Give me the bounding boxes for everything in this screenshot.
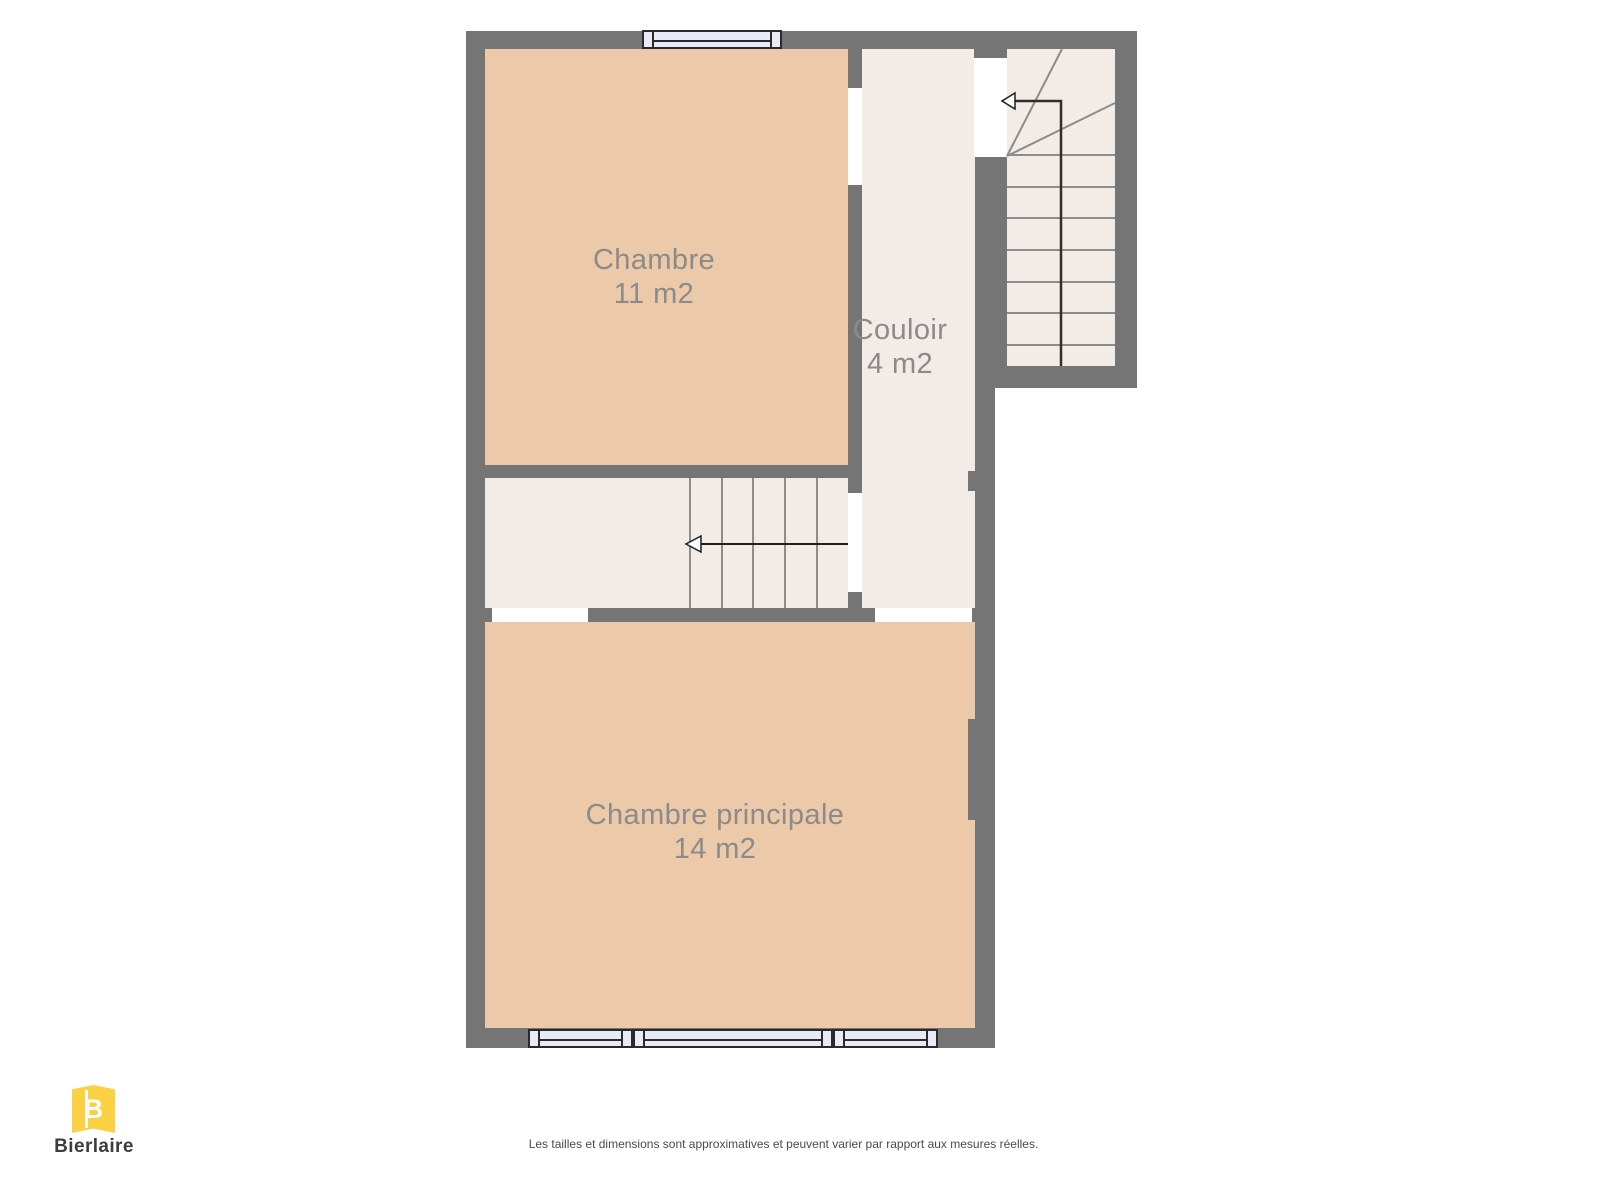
window-bottom-left <box>528 1029 633 1048</box>
doorway-couloir-principale <box>875 608 972 622</box>
doorway-chambre-couloir <box>848 88 862 185</box>
middle-stairs-direction-arrow-icon <box>686 536 701 552</box>
window-rail <box>540 1039 621 1041</box>
room-name: Couloir <box>845 313 955 347</box>
room-name: Chambre principale <box>485 798 945 832</box>
floor-plan-page: Chambre 11 m2 Couloir 4 m2 Chambre princ… <box>0 0 1600 1200</box>
room-area: 11 m2 <box>473 277 835 311</box>
window-rail <box>645 1039 821 1041</box>
window-cap <box>926 1031 928 1046</box>
room-name: Chambre <box>473 243 835 277</box>
wall-left <box>466 31 485 1048</box>
wall-stairwell-bottom <box>975 366 1137 388</box>
wall-stairwell-right <box>1115 31 1137 388</box>
window-bottom-center <box>633 1029 833 1048</box>
middle-stairs <box>485 478 848 608</box>
room-label-chambre: Chambre 11 m2 <box>473 243 835 311</box>
room-label-couloir: Couloir 4 m2 <box>845 313 955 381</box>
window-cap <box>821 1031 823 1046</box>
wall-top <box>466 31 1137 49</box>
stairwell-stairs <box>1007 49 1115 366</box>
logo-monogram-stem <box>85 1090 88 1128</box>
window-top <box>642 30 782 49</box>
wall-chambre-landing <box>466 465 862 478</box>
wall-right <box>975 388 995 1048</box>
room-label-chambre-principale: Chambre principale 14 m2 <box>485 798 945 866</box>
window-bottom-right <box>833 1029 938 1048</box>
window-cap <box>621 1031 623 1046</box>
window-cap <box>770 32 772 47</box>
room-area: 4 m2 <box>845 347 955 381</box>
doorway-landing-couloir <box>848 493 862 592</box>
doorway-couloir-stairwell <box>974 58 1007 157</box>
wall-top-notch <box>974 49 1007 58</box>
wall-landing-couloir-upper <box>848 478 862 493</box>
window-rail <box>845 1039 926 1041</box>
logo-monogram: B <box>72 1093 115 1125</box>
wall-chambre-couloir-upper <box>848 49 862 88</box>
wall-doorstop-principale <box>968 719 975 820</box>
wall-couloir-stairwell <box>975 157 1007 366</box>
bierlaire-logo-icon: B <box>72 1085 115 1133</box>
room-area: 14 m2 <box>485 832 945 866</box>
disclaimer-text: Les tailles et dimensions sont approxima… <box>0 1136 1567 1152</box>
wall-doorstop-couloir <box>968 471 975 491</box>
doorway-landing-principale <box>492 608 588 622</box>
window-rail <box>654 40 770 42</box>
